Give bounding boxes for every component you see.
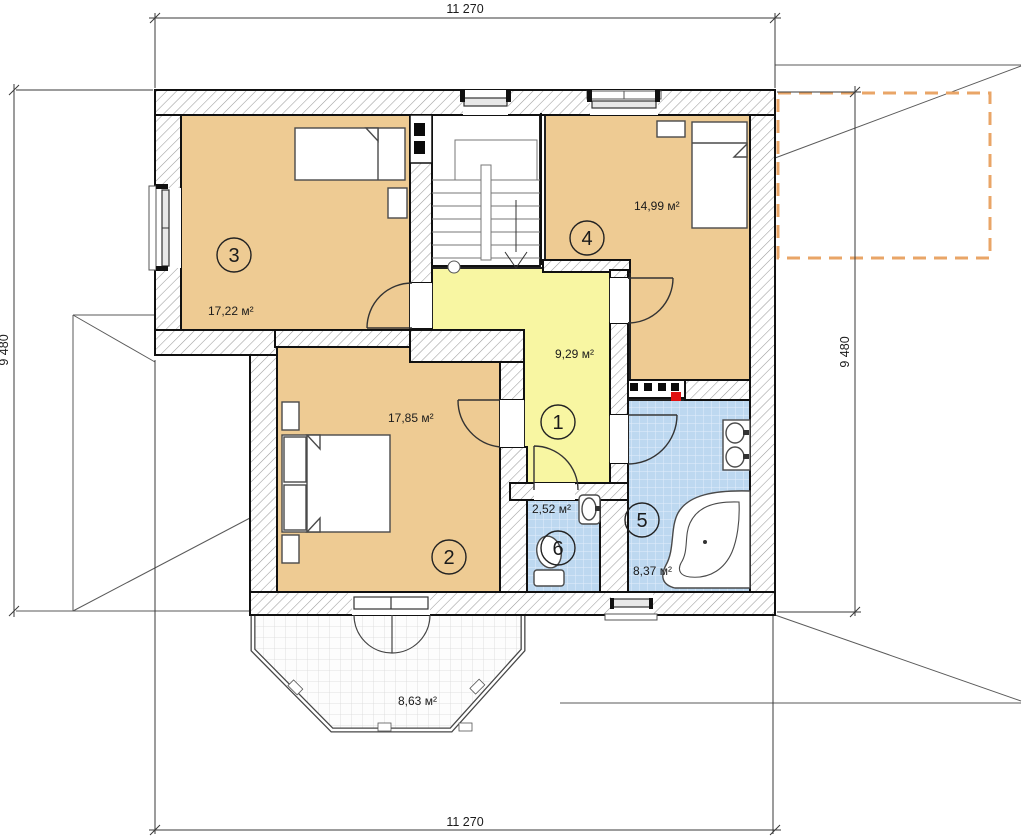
room-area: 9,29 м² [555, 347, 594, 361]
room-number: 2 [443, 547, 454, 569]
flue-icon [630, 383, 638, 391]
wall-left-step [155, 330, 277, 355]
wall-hall-sw [410, 330, 524, 362]
window-bedroom3-icon [149, 184, 181, 271]
double-sink-icon [723, 420, 750, 470]
bed-single-icon [692, 122, 747, 228]
stair-newel-icon [448, 261, 460, 273]
flue-icon [644, 383, 652, 391]
wall-hall-east-lower [610, 463, 628, 483]
dim-top: 11 270 [446, 2, 483, 16]
wall-left-lower [250, 355, 277, 592]
floor-plan-svg: 11 270 11 270 9 480 9 480 [0, 0, 1024, 836]
wall-bottom [250, 592, 775, 615]
wall-room4-bath [685, 380, 750, 400]
balcony-mullion [378, 723, 391, 731]
balcony-mullion [459, 723, 472, 731]
room-area: 2,52 м² [532, 502, 571, 516]
floor-plan-canvas: 11 270 11 270 9 480 9 480 [0, 0, 1024, 836]
room-number: 3 [228, 245, 239, 267]
nightstand-icon [282, 402, 299, 430]
nightstand-icon [388, 188, 407, 218]
window-bathroom-icon [605, 593, 657, 620]
flue-icon [671, 383, 679, 391]
room-area: 14,99 м² [634, 199, 680, 213]
flue-icon [414, 123, 425, 136]
wall-right [750, 115, 775, 592]
dim-right: 9 480 [838, 336, 852, 367]
room-number: 1 [552, 412, 563, 434]
room-number: 4 [581, 228, 592, 250]
flue-icon [658, 383, 666, 391]
flue-icon [414, 141, 425, 154]
bed-double-icon [282, 435, 390, 532]
wall-room3-room2 [275, 330, 432, 347]
wall-room2-wc [500, 447, 527, 592]
room-area: 8,37 м² [633, 564, 672, 578]
wall-hall-east-stub [610, 270, 628, 278]
bed-single-icon [295, 128, 405, 180]
window-stairwell-icon [460, 90, 511, 115]
nightstand-icon [657, 121, 685, 137]
window-bedroom4-icon [587, 90, 661, 115]
room-area: 8,63 м² [398, 694, 437, 708]
dim-left: 9 480 [0, 334, 11, 365]
vent-red-marker [671, 392, 681, 401]
room-area: 17,85 м² [388, 411, 434, 425]
dim-bottom: 11 270 [446, 815, 483, 829]
room-area: 17,22 м² [208, 304, 254, 318]
wc-sink-icon [579, 495, 600, 524]
room-number: 5 [636, 510, 647, 532]
wall-room2-hall-upper [500, 362, 524, 400]
wall-wc-bath [600, 500, 628, 592]
room-number: 6 [552, 538, 563, 560]
wall-hall-east [610, 323, 628, 415]
nightstand-icon [282, 535, 299, 563]
